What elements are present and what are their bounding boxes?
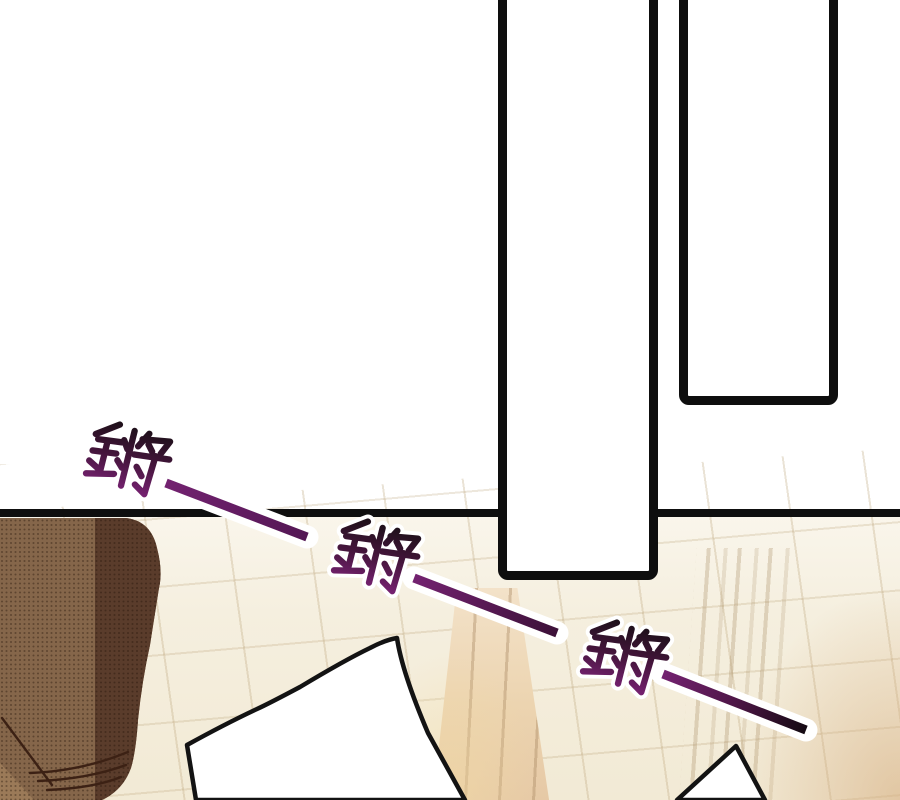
wall-floor-boundary-line — [0, 509, 900, 517]
floor-warm-glow — [360, 650, 540, 800]
white-column-right — [679, 0, 838, 405]
comic-panel — [0, 0, 900, 800]
white-column-center — [498, 0, 658, 580]
floor — [0, 510, 900, 800]
floor-corner-tint — [740, 590, 900, 800]
